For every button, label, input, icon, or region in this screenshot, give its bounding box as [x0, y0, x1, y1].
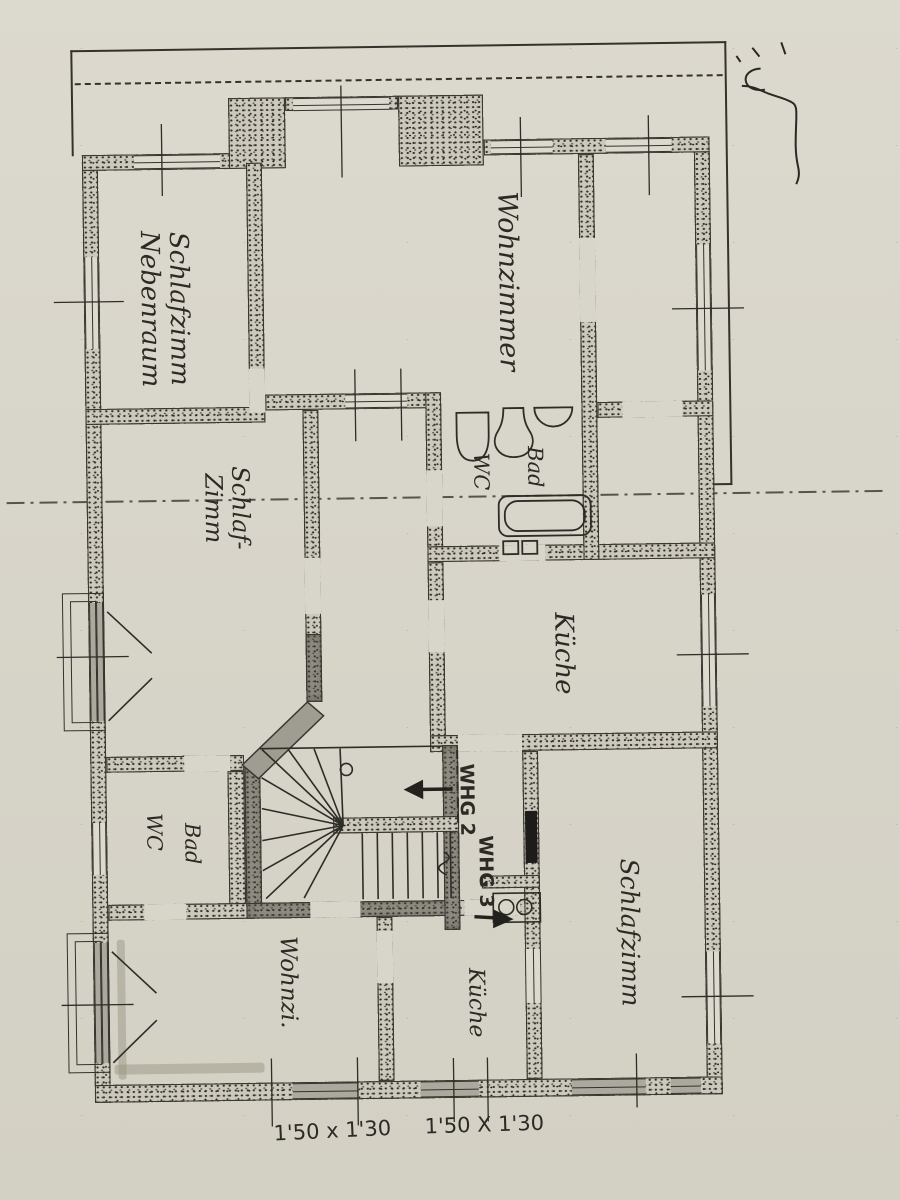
room-label-wc-top: WC: [445, 436, 516, 507]
room-label-kitchen-top: Küche: [497, 588, 629, 720]
window-symbol: [92, 823, 107, 875]
room-label-line: Küche: [548, 612, 578, 695]
stairwell-wall-highlighted: [244, 765, 262, 913]
room-label-living-lower: Wohnzi.: [226, 921, 348, 1043]
pen-squiggle: [736, 42, 799, 185]
window-symbol: [293, 97, 389, 111]
door-opening: [622, 401, 682, 418]
wall-segment: [427, 562, 446, 752]
room-label-line: Schlaf-: [226, 466, 254, 550]
window-symbol: [671, 1078, 701, 1094]
window-symbol: [134, 154, 220, 169]
glazed-door-symbol: [345, 394, 407, 409]
room-label-living-room-top: Wohnzimmer: [436, 195, 578, 367]
door-opening: [184, 755, 230, 772]
door-opening: [499, 545, 545, 562]
terrace-outline-left: [70, 50, 73, 156]
highlighter-mark: [117, 940, 127, 1080]
room-label-line: WC: [141, 813, 165, 851]
terrace-outline-connector: [714, 483, 732, 485]
window-symbol: [696, 244, 712, 370]
window-symbol: [293, 1082, 359, 1099]
room-label-bedroom-mid-left: Schlaf- Zimm: [156, 437, 298, 579]
roof-dashed-line: [75, 74, 723, 85]
room-label-bedroom-lower-right: Schlafzimm: [549, 851, 711, 1013]
terrace-outline-top: [70, 41, 726, 52]
door-opening: [304, 558, 321, 614]
door-opening: [249, 369, 266, 413]
room-label-line: Schlafzimm: [163, 232, 194, 386]
window-symbol: [701, 594, 717, 706]
window-dimension-right: 1'50 X 1'30: [399, 1105, 570, 1144]
room-label-line: Zimm: [199, 473, 227, 543]
room-label-kitchen-lower: Küche: [420, 947, 532, 1059]
room-label-bedroom-top-left: Schlafzimm Nebenraum: [88, 223, 240, 395]
wall-segment: [228, 97, 286, 169]
wall-segment: [427, 542, 715, 562]
door-opening: [426, 470, 443, 526]
floor-plan: Schlafzimm Nebenraum Wohnzimmer Schlaf- …: [0, 0, 900, 1200]
balcony-outline-inner: [70, 601, 98, 723]
window-symbol: [421, 1081, 479, 1098]
room-label-line: Wohnzimmer: [491, 191, 524, 371]
wall-segment: [578, 154, 600, 560]
door-opening: [144, 904, 186, 921]
corner-basin-symbol: [534, 407, 572, 427]
door-leaf-symbol: [525, 811, 538, 863]
bathtub-inner-line: [505, 500, 585, 531]
room-label-line: Bad: [522, 446, 546, 488]
room-label-line: Wohnzi.: [274, 936, 301, 1029]
apartment-2-label: WHG 2: [426, 759, 507, 840]
room-label-line: WC: [468, 453, 492, 491]
hall-wall-highlighted: [305, 634, 322, 702]
door-opening: [377, 931, 394, 983]
room-label-line: Küche: [463, 968, 489, 1038]
door-opening: [310, 901, 360, 918]
window-symbol: [606, 138, 672, 153]
apartment-3-label: WHG 3: [445, 831, 526, 912]
stair-newel-post: [340, 763, 352, 775]
terrace-outline-right: [724, 41, 732, 485]
window-dimension-left: 1'50 x 1'30: [247, 1110, 418, 1152]
door-opening: [458, 734, 522, 752]
highlighter-mark: [114, 1063, 264, 1075]
door-opening: [428, 600, 445, 652]
balcony-outline-inner: [75, 941, 103, 1065]
room-label-line: Schlafzimm: [615, 858, 645, 1006]
door-opening: [579, 238, 596, 322]
window-symbol: [491, 140, 553, 155]
room-label-line: Nebenraum: [134, 231, 165, 388]
wall-segment: [85, 407, 265, 426]
scanned-floor-plan-page: Schlafzimm Nebenraum Wohnzimmer Schlaf- …: [0, 0, 900, 1200]
window-symbol: [572, 1078, 646, 1095]
room-label-wc-lower: WC: [113, 797, 194, 868]
wall-segment: [398, 94, 484, 166]
